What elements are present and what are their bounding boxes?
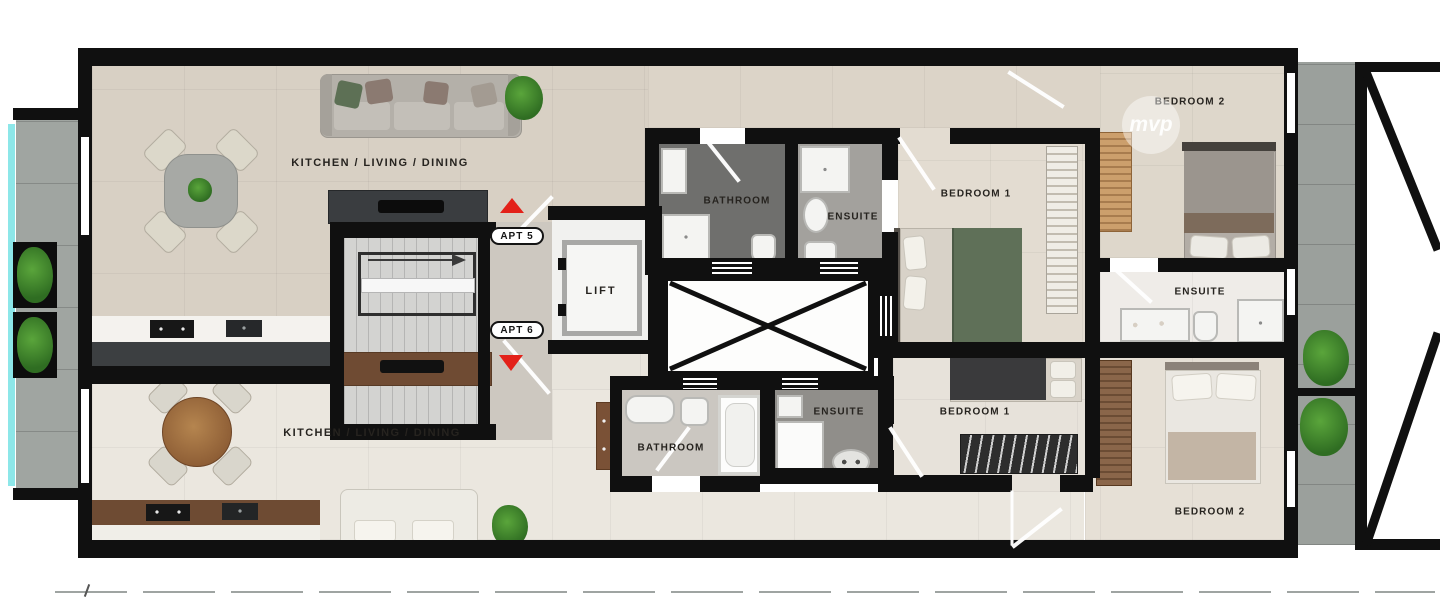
apt5-ensuite-wall-right-b — [882, 232, 898, 275]
prow-diagonal-bottom — [1366, 333, 1438, 545]
sofa-apt5-armrest — [320, 74, 332, 136]
apt5-bathroom-shower — [662, 214, 710, 260]
label-apt5-bathroom: BATHROOM — [704, 196, 771, 207]
window-left-2 — [80, 388, 90, 484]
cooktop-apt5 — [150, 320, 194, 338]
outer-wall-bottom — [78, 540, 1298, 558]
prow-line-top — [1355, 62, 1440, 72]
balcony-right-floor — [1298, 62, 1355, 545]
stair-wall-left — [330, 238, 344, 426]
sofa-pillow-green — [334, 80, 364, 110]
bed-pillow — [1050, 361, 1076, 379]
bedroom-divider-wall-bottom — [1085, 358, 1100, 478]
apt6-bathroom-wall-bottom-a — [610, 476, 652, 492]
window-right-2 — [1286, 268, 1296, 316]
prow-diagonal-top — [1366, 72, 1438, 250]
label-apt6-bedroom2: BEDROOM 2 — [1175, 507, 1245, 518]
apt6-entry-marker-icon — [499, 355, 523, 371]
apt5-badge: APT 5 — [490, 227, 544, 245]
watermark-logo: mvp — [1122, 96, 1180, 154]
apt5-bedroom2-ensuite-vanity — [1120, 308, 1190, 342]
label-apt6-ensuite: ENSUITE — [813, 407, 864, 418]
apt6-corridor-floor — [610, 492, 1084, 540]
apt6-ensuite-basin — [777, 395, 803, 418]
watermark-text: mvp — [1129, 113, 1172, 137]
vent-hatch — [782, 378, 818, 389]
lift-door-jamb — [558, 304, 566, 316]
bathtub-basin — [725, 403, 755, 467]
apt5-bedroom1-duvet — [952, 228, 1022, 344]
apt6-bathroom-bathtub — [718, 395, 760, 475]
apt5-bedroom2-ensuite-shower — [1237, 299, 1284, 343]
outer-wall-right — [1355, 62, 1367, 548]
planter-box-1 — [13, 242, 57, 308]
apt5-bedroom2-ensuite-toilet — [1193, 311, 1218, 342]
lightwell-void — [662, 275, 874, 377]
tv-screen-apt5 — [378, 200, 444, 213]
bed-pillow — [1231, 235, 1270, 260]
apt6-bedroom2-headboard — [1165, 362, 1259, 370]
planter-plant-icon — [17, 317, 53, 373]
kitchen-cabinets-apt5 — [92, 342, 332, 366]
balcony-right-plant-icon — [1303, 330, 1349, 386]
sofa-pillow-brown — [364, 78, 393, 105]
label-apt5-kitchen-living-dining: KITCHEN / LIVING / DINING — [291, 157, 468, 169]
label-apt5-ensuite: ENSUITE — [827, 212, 878, 223]
apt6-bathroom-ensuite-divider — [760, 388, 775, 476]
planter-plant-icon — [17, 247, 53, 303]
apt5-bathroom-wall-left — [645, 144, 659, 275]
vent-hatch — [712, 262, 752, 274]
stair-mid-landing — [361, 278, 475, 293]
apt5-bedroom2-wardrobe — [1098, 132, 1132, 232]
apartment-divider-wall — [92, 366, 332, 384]
window-right-1 — [1286, 72, 1296, 134]
apt6-bedroom2-wardrobe — [1096, 360, 1132, 486]
apt6-bedroom1-wall-bottom-b — [1060, 475, 1093, 492]
apt5-bedroom2-duvet — [1184, 151, 1274, 213]
kitchen-sink-apt6 — [222, 503, 258, 520]
kitchen-sink-apt5 — [226, 320, 262, 337]
apt5-bathroom-wall-top-a — [645, 128, 700, 144]
kitchen-counter-apt6 — [92, 500, 320, 525]
apt6-bathroom-wall-bottom-b — [700, 476, 760, 492]
label-apt6-bedroom1: BEDROOM 1 — [940, 407, 1010, 418]
apt6-ensuite-shower — [776, 421, 824, 473]
balcony-left-cap-bottom — [13, 488, 78, 500]
vent-hatch — [683, 378, 717, 389]
apt5-entry-marker-icon — [500, 198, 524, 213]
lift-door-jamb — [558, 258, 566, 270]
label-apt5-bedroom2-ensuite: ENSUITE — [1174, 287, 1225, 298]
bed-pillow — [1189, 235, 1228, 260]
apt6-ensuite-wall-right-a — [878, 376, 894, 424]
dining-table-apt6 — [162, 397, 232, 467]
sofa-apt6-cushion — [412, 520, 454, 542]
bed-pillow — [1171, 373, 1213, 402]
apt6-bedroom1-wardrobe — [960, 434, 1078, 474]
bed-pillow — [1050, 380, 1076, 398]
kitchen-counter-apt5 — [92, 316, 332, 343]
apt6-bedroom1-duvet — [950, 358, 1046, 400]
outer-wall-top — [78, 48, 1298, 66]
stair-wall-top — [330, 222, 496, 238]
dining-table-plant-icon — [188, 178, 212, 202]
apt5-ensuite-shower — [800, 146, 850, 193]
label-apt6-kitchen-living-dining: KITCHEN / LIVING / DINING — [283, 427, 460, 439]
apt5-bedroom2-headboard — [1182, 142, 1276, 151]
apt5-corridor-floor — [648, 66, 1100, 128]
mid-divider-wall-right — [878, 342, 1284, 358]
stair-wall-right — [478, 238, 490, 424]
bedroom-divider-wall-top — [1085, 128, 1100, 345]
apt6-bedroom2-blanket — [1168, 432, 1256, 480]
cooktop-apt6 — [146, 504, 190, 521]
apt5-bathroom-wall-bottom — [645, 258, 898, 275]
sofa-apt5-cushion — [394, 102, 450, 130]
apt6-bathroom-toilet — [680, 397, 709, 426]
window-right-3 — [1286, 450, 1296, 508]
kitchen-plinth-apt6 — [92, 525, 320, 540]
apt5-bedroom2-ensuite-wall-a — [1100, 258, 1110, 272]
tv-screen-apt6 — [380, 360, 444, 373]
dimension-line — [55, 591, 1435, 593]
label-lift: LIFT — [585, 285, 616, 297]
bed-pillow — [902, 235, 927, 271]
label-apt6-bathroom: BATHROOM — [638, 443, 705, 454]
bed-pillow — [1215, 373, 1257, 402]
apt5-bathroom-wall-top-b — [745, 128, 900, 144]
label-apt5-bedroom1: BEDROOM 1 — [941, 189, 1011, 200]
apt5-bedroom1-wall-top — [950, 128, 1085, 144]
bed-pillow — [903, 275, 928, 311]
balcony-left-cap-top — [13, 108, 78, 120]
apt5-bedroom2-ensuite-wall-b — [1158, 258, 1284, 272]
balcony-right-plant-icon — [1300, 398, 1348, 456]
apt5-bathroom-ensuite-divider — [785, 144, 798, 258]
vent-hatch — [820, 262, 858, 274]
apt5-bedroom2-throw — [1184, 213, 1274, 233]
apt6-ensuite-wall-bottom — [760, 468, 894, 484]
lift-wall-top — [548, 206, 654, 220]
floor-plan-canvas: KITCHEN / LIVING / DINING KITCHEN / LIVI… — [0, 0, 1440, 599]
sofa-pillow-brown — [423, 81, 450, 106]
sofa-apt6-cushion — [354, 520, 396, 542]
planter-box-2 — [13, 312, 57, 378]
prow-line-bottom — [1355, 539, 1440, 550]
window-left-1 — [80, 136, 90, 236]
vent-hatch-vertical — [880, 296, 892, 336]
plant-apt5-living-icon — [505, 76, 543, 120]
apt6-badge: APT 6 — [490, 321, 544, 339]
balcony-right-divider — [1298, 388, 1355, 396]
apt6-bathroom-basin — [625, 395, 675, 424]
apt6-bathroom-wall-top — [610, 376, 894, 390]
apt5-bathroom-vanity — [661, 148, 687, 194]
apt5-ensuite-wall-right-a — [882, 128, 898, 180]
lift-wall-bottom — [548, 340, 654, 354]
apt5-ensuite-basin — [803, 197, 829, 233]
apt6-bedroom1-wall-bottom-a — [878, 475, 1012, 492]
apt5-bedroom1-wardrobe — [1046, 146, 1078, 314]
